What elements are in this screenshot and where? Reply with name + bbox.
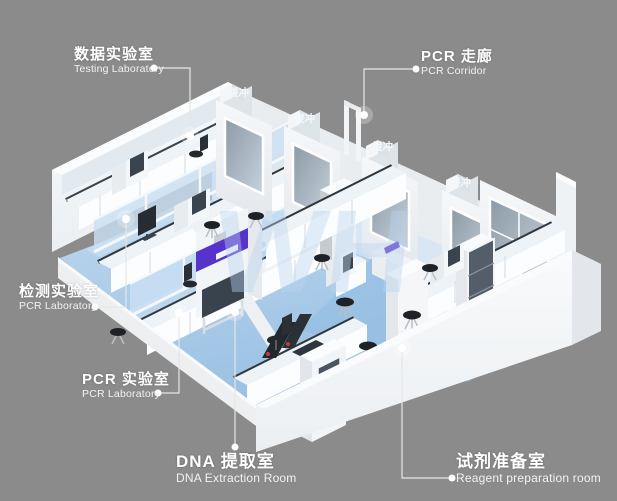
- callout-en-label: Testing Laboratory: [74, 63, 164, 75]
- callout-zh-label: 试剂准备室: [456, 452, 601, 472]
- callout-dna-extraction-room: DNA 提取室 DNA Extraction Room: [176, 452, 297, 485]
- callout-zh-label: 检测实验室: [19, 283, 99, 300]
- callout-en-label: PCR Corridor: [421, 65, 493, 77]
- callout-zh-label: PCR 实验室: [82, 371, 170, 388]
- room-tag-buffer-4: 缓冲: [449, 176, 471, 189]
- room-tag-buffer-2: 缓冲: [293, 112, 315, 125]
- callout-pcr-laboratory-left: 检测实验室 PCR Laboratory: [19, 283, 99, 312]
- callout-reagent-preparation-room: 试剂准备室 Reagent preparation room: [456, 452, 601, 485]
- callout-zh-label: DNA 提取室: [176, 452, 297, 472]
- lab-floorplan-diagram: WH 缓冲 缓冲 缓冲 缓冲 数据实验室 Te: [0, 0, 617, 501]
- room-tag-buffer-3: 缓冲: [371, 140, 393, 153]
- callout-en-label: DNA Extraction Room: [176, 472, 297, 486]
- callout-testing-laboratory: 数据实验室 Testing Laboratory: [74, 46, 164, 75]
- callout-en-label: Reagent preparation room: [456, 472, 601, 486]
- room-tag-buffer-1: 缓冲: [227, 86, 249, 99]
- callout-pcr-laboratory: PCR 实验室 PCR Laboratory: [82, 371, 170, 400]
- callout-en-label: PCR Laboratory: [19, 300, 99, 312]
- callout-zh-label: PCR 走廊: [421, 48, 493, 65]
- callout-zh-label: 数据实验室: [74, 46, 164, 63]
- watermark-text: WH: [209, 186, 419, 318]
- callout-en-label: PCR Laboratory: [82, 388, 170, 400]
- callout-pcr-corridor: PCR 走廊 PCR Corridor: [421, 48, 493, 77]
